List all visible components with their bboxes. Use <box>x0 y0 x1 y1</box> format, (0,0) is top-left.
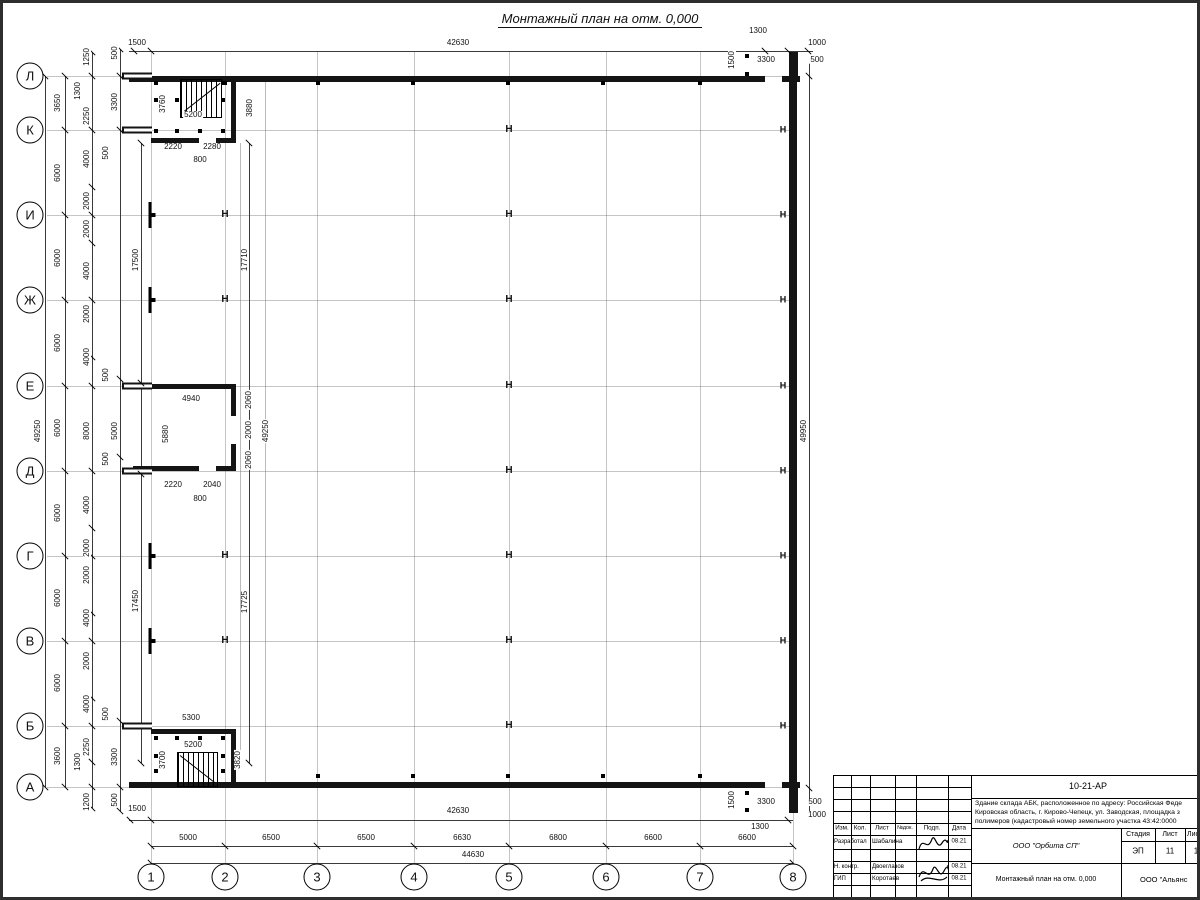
row3-name: Коротаев <box>872 876 899 883</box>
steel-column-symbol: Н <box>505 381 512 391</box>
grid-line-col-5 <box>509 51 510 863</box>
wall-base-plate <box>601 81 605 85</box>
axis-bubble-1: 1 <box>138 864 165 891</box>
column-dot <box>175 736 179 740</box>
dim-label-3760-47: 3760 <box>159 94 167 114</box>
steel-column-symbol: Н <box>221 210 228 220</box>
wall-base-plate <box>506 774 510 778</box>
wall-base-plate <box>698 774 702 778</box>
steel-column-symbol: Н <box>221 295 228 305</box>
row3-role: ГИП <box>834 876 846 883</box>
dim-label-3300-43: 3300 <box>111 747 119 767</box>
wall-column-symbol: Н <box>780 722 787 731</box>
dim-label-1300-73: 1300 <box>750 823 770 831</box>
axis-bubble-Ж: Ж <box>17 287 44 314</box>
column-dot <box>154 81 158 85</box>
dim-label-6000-14: 6000 <box>54 588 62 608</box>
axis-bubble-В: В <box>17 628 44 655</box>
dim-label-500-5: 500 <box>809 56 824 64</box>
grid-line-col-6 <box>606 51 607 863</box>
object-desc-2: Кировская область, г. Кирово-Чепецк, ул.… <box>975 809 1180 816</box>
grid-line-col-3 <box>317 51 318 863</box>
pilaster-top-right <box>789 52 798 78</box>
dim-label-6630-79: 6630 <box>452 834 472 842</box>
steel-column-symbol: Н <box>505 466 512 476</box>
column-dot <box>175 129 179 133</box>
dim-label-6000-15: 6000 <box>54 673 62 693</box>
dim-label-1500-69: 1500 <box>728 790 736 810</box>
dim-label-2040-61: 2040 <box>202 481 222 489</box>
dim-label-1500-6: 1500 <box>728 50 736 70</box>
stage-label: Стадия <box>1126 831 1150 839</box>
dim-label-500-39: 500 <box>102 367 110 382</box>
dim-label-6500-78: 6500 <box>356 834 376 842</box>
dim-label-1250-17: 1250 <box>83 47 91 67</box>
wall-base-plate <box>698 81 702 85</box>
dim-label-4000-27: 4000 <box>83 495 91 515</box>
axis-bubble-К: К <box>17 117 44 144</box>
dim-line-h-0 <box>129 51 813 52</box>
wall-base-plate <box>745 808 749 812</box>
row2-date: 08.21 <box>951 864 966 871</box>
wall-base-plate <box>745 54 749 58</box>
steel-column-symbol: Н <box>505 295 512 305</box>
dim-label-2060-57: 2060 <box>245 390 253 410</box>
dim-label-800-62: 800 <box>192 495 207 503</box>
wall-column-symbol: Н <box>780 467 787 476</box>
col-list: Лист <box>875 826 889 833</box>
dim-line-v-6 <box>92 52 93 808</box>
dim-label-2000-22: 2000 <box>83 219 91 239</box>
axis-bubble-И: И <box>17 202 44 229</box>
dim-label-5200-48: 5200 <box>183 111 203 119</box>
dim-label-2220-50: 2220 <box>163 143 183 151</box>
dim-label-2000-29: 2000 <box>83 565 91 585</box>
dim-label-1500-0: 1500 <box>127 39 147 47</box>
wall-base-plate <box>745 791 749 795</box>
dim-label-5880-56: 5880 <box>162 424 170 444</box>
dim-label-42630-1: 42630 <box>446 39 470 47</box>
axis-bubble-7: 7 <box>687 864 714 891</box>
dim-label-4940-55: 4940 <box>181 395 201 403</box>
wall-bottom <box>129 782 765 788</box>
dim-line-v-5 <box>65 76 66 787</box>
col-kol: Кол. <box>854 826 866 833</box>
fachwerk-post <box>149 287 152 313</box>
plan-title: Монтажный план на отм. 0,000 <box>996 876 1097 884</box>
wall-stub <box>122 73 152 80</box>
org2: ООО "Альянс <box>1140 876 1188 884</box>
grid-line-col-7 <box>700 51 701 863</box>
axis-bubble-Е: Е <box>17 373 44 400</box>
signature-2 <box>917 859 949 885</box>
dim-line-v-10 <box>809 63 810 811</box>
signature-1 <box>917 833 949 855</box>
object-desc-1: Здание склада АБК, расположенное по адре… <box>975 800 1182 807</box>
row1-role: Разработал <box>834 839 867 846</box>
grid-line-row-Б <box>47 726 791 727</box>
dim-label-2000-58: 2000 <box>245 420 253 440</box>
axis-bubble-Г: Г <box>17 543 44 570</box>
dim-label-17500-45: 17500 <box>132 248 140 272</box>
wall-column-symbol: Н <box>780 126 787 135</box>
dim-label-1500-74: 1500 <box>127 805 147 813</box>
grid-line-row-Д <box>47 471 791 472</box>
column-dot <box>198 129 202 133</box>
dim-label-1000-72: 1000 <box>807 811 827 819</box>
dim-label-6000-13: 6000 <box>54 503 62 523</box>
row2-role: Н. контр. <box>834 864 859 871</box>
dim-line-h-2 <box>151 846 793 847</box>
dim-label-1300-2: 1300 <box>748 27 768 35</box>
dim-label-6800-80: 6800 <box>548 834 568 842</box>
dim-label-1300-34: 1300 <box>74 752 82 772</box>
room2-wall-bottom-b <box>216 466 236 471</box>
row2-name: Двоеглазов <box>872 864 904 871</box>
dim-label-2220-60: 2220 <box>163 481 183 489</box>
dim-label-42630-75: 42630 <box>446 807 470 815</box>
dim-label-5000-40: 5000 <box>111 421 119 441</box>
row3-date: 08.21 <box>951 876 966 883</box>
dim-label-17710-53: 17710 <box>241 248 249 272</box>
dim-label-4000-32: 4000 <box>83 694 91 714</box>
dim-label-3300-4: 3300 <box>756 56 776 64</box>
dim-label-4000-30: 4000 <box>83 608 91 628</box>
dim-label-2250-19: 2250 <box>83 106 91 126</box>
grid-line-col-1 <box>151 51 152 863</box>
dim-label-6600-81: 6600 <box>643 834 663 842</box>
sheets-value: 1 <box>1194 848 1198 857</box>
column-dot <box>175 98 179 102</box>
col-podp: Подп. <box>924 826 941 833</box>
wall-right <box>789 76 797 788</box>
dim-label-3880-49: 3880 <box>246 98 254 118</box>
dim-label-49250-7: 49250 <box>34 419 42 443</box>
dim-label-2000-24: 2000 <box>83 304 91 324</box>
dim-label-2000-28: 2000 <box>83 538 91 558</box>
wall-stub <box>122 383 152 390</box>
wall-column-symbol: Н <box>780 637 787 646</box>
col-data: Дата <box>952 826 966 833</box>
wall-base-plate <box>745 72 749 76</box>
dim-line-h-1 <box>129 820 793 821</box>
stage-value: ЭП <box>1132 848 1144 857</box>
wall-base-plate <box>316 81 320 85</box>
dim-label-2000-31: 2000 <box>83 651 91 671</box>
object-desc-3: полимеров (кадастровый номер земельного … <box>975 818 1177 825</box>
dim-label-500-44: 500 <box>111 792 119 807</box>
steel-column-symbol: Н <box>505 636 512 646</box>
fachwerk-post <box>149 628 152 654</box>
wall-base-plate <box>601 774 605 778</box>
doc-code: 10-21-АР <box>1069 782 1107 792</box>
axis-bubble-6: 6 <box>593 864 620 891</box>
dim-label-6000-12: 6000 <box>54 418 62 438</box>
grid-line-row-И <box>47 215 791 216</box>
steel-column-symbol: Н <box>505 210 512 220</box>
column-dot <box>221 754 225 758</box>
dim-label-3820-67: 3820 <box>234 750 242 770</box>
dim-label-500-71: 500 <box>807 798 822 806</box>
wall-stub <box>122 723 152 730</box>
axis-bubble-2: 2 <box>212 864 239 891</box>
wall-base-plate <box>506 81 510 85</box>
dim-label-44630-83: 44630 <box>461 851 485 859</box>
dim-label-5300-64: 5300 <box>181 714 201 722</box>
grid-line-row-К <box>47 130 791 131</box>
dim-label-3700-66: 3700 <box>159 750 167 770</box>
dim-label-4000-20: 4000 <box>83 149 91 169</box>
dim-label-6000-11: 6000 <box>54 333 62 353</box>
pilaster-bottom-right <box>789 788 798 813</box>
wall-base-plate <box>411 774 415 778</box>
column-dot <box>221 736 225 740</box>
row1-date: 08.21 <box>951 839 966 846</box>
dim-label-2060-59: 2060 <box>245 450 253 470</box>
dim-label-3300-70: 3300 <box>756 798 776 806</box>
sheets-label: Листов <box>1187 831 1200 839</box>
dim-label-1000-3: 1000 <box>807 39 827 47</box>
axis-bubble-Д: Д <box>17 458 44 485</box>
grid-line-row-Ж <box>47 300 791 301</box>
room3-wall-top <box>151 729 236 734</box>
wall-base-plate <box>411 81 415 85</box>
dim-label-4000-25: 4000 <box>83 347 91 367</box>
dim-label-1300-18: 1300 <box>74 81 82 101</box>
dim-line-v-8 <box>141 143 142 763</box>
sheet-value: 11 <box>1166 848 1174 857</box>
steel-column-symbol: Н <box>221 636 228 646</box>
column-dot <box>154 736 158 740</box>
dim-label-6600-82: 6600 <box>737 834 757 842</box>
wall-column-symbol: Н <box>780 296 787 305</box>
column-dot <box>221 769 225 773</box>
steel-column-symbol: Н <box>221 551 228 561</box>
dim-label-6500-77: 6500 <box>261 834 281 842</box>
axis-bubble-5: 5 <box>496 864 523 891</box>
sheet-label: Лист <box>1162 831 1177 839</box>
dim-label-1200-35: 1200 <box>83 792 91 812</box>
room2-wall-right-upper <box>231 389 236 416</box>
wall-column-symbol: Н <box>780 211 787 220</box>
wall-base-plate <box>316 774 320 778</box>
dim-label-2000-21: 2000 <box>83 191 91 211</box>
grid-line-col-4 <box>414 51 415 863</box>
drawing-title: Монтажный план на отм. 0,000 <box>3 10 1197 28</box>
dim-label-2280-51: 2280 <box>202 143 222 151</box>
steel-column-symbol: Н <box>505 551 512 561</box>
axis-bubble-3: 3 <box>304 864 331 891</box>
dim-label-2250-33: 2250 <box>83 737 91 757</box>
dim-label-3300-37: 3300 <box>111 92 119 112</box>
axis-bubble-4: 4 <box>401 864 428 891</box>
column-dot <box>154 129 158 133</box>
dim-label-500-38: 500 <box>102 145 110 160</box>
axis-bubble-Л: Л <box>17 63 44 90</box>
axis-bubble-Б: Б <box>17 713 44 740</box>
drawing-sheet: Монтажный план на отм. 0,000 <box>0 0 1200 900</box>
col-izm: Изм. <box>835 826 849 833</box>
dim-label-4000-23: 4000 <box>83 261 91 281</box>
wall-column-symbol: Н <box>780 382 787 391</box>
grid-line-col-2 <box>225 51 226 863</box>
dim-label-500-36: 500 <box>111 45 119 60</box>
column-dot <box>221 129 225 133</box>
steel-column-symbol: Н <box>505 125 512 135</box>
dim-label-3650-8: 3650 <box>54 93 62 113</box>
dim-label-500-41: 500 <box>102 451 110 466</box>
col-ndok: №док. <box>897 826 913 832</box>
dim-line-v-4 <box>45 76 46 787</box>
steel-column-symbol: Н <box>505 721 512 731</box>
fachwerk-post <box>149 543 152 569</box>
dim-label-800-52: 800 <box>192 156 207 164</box>
row1-name: Шабалина <box>872 839 902 846</box>
column-dot <box>154 769 158 773</box>
grid-line-row-Г <box>47 556 791 557</box>
room1-wall-right <box>231 76 236 143</box>
extension-line-0 <box>240 143 241 763</box>
dim-label-5000-76: 5000 <box>178 834 198 842</box>
dim-label-6000-9: 6000 <box>54 163 62 183</box>
dim-label-49250-54: 49250 <box>262 419 270 443</box>
dim-label-8000-26: 8000 <box>83 421 91 441</box>
dim-line-v-7 <box>120 49 121 811</box>
dim-label-3600-16: 3600 <box>54 746 62 766</box>
column-dot <box>221 81 225 85</box>
axis-bubble-А: А <box>17 774 44 801</box>
dim-label-5200-65: 5200 <box>183 741 203 749</box>
dim-label-17725-63: 17725 <box>241 590 249 614</box>
dim-label-500-42: 500 <box>102 706 110 721</box>
wall-column-symbol: Н <box>780 552 787 561</box>
dim-label-17450-46: 17450 <box>132 589 140 613</box>
org1: ООО "Орбита СП" <box>1013 842 1080 850</box>
wall-bottom-right-piece <box>782 782 800 788</box>
grid-line-row-В <box>47 641 791 642</box>
wall-stub <box>122 127 152 134</box>
dim-label-6000-10: 6000 <box>54 248 62 268</box>
dim-label-49950-68: 49950 <box>800 419 808 443</box>
axis-bubble-8: 8 <box>780 864 807 891</box>
column-dot <box>221 98 225 102</box>
fachwerk-post <box>149 202 152 228</box>
